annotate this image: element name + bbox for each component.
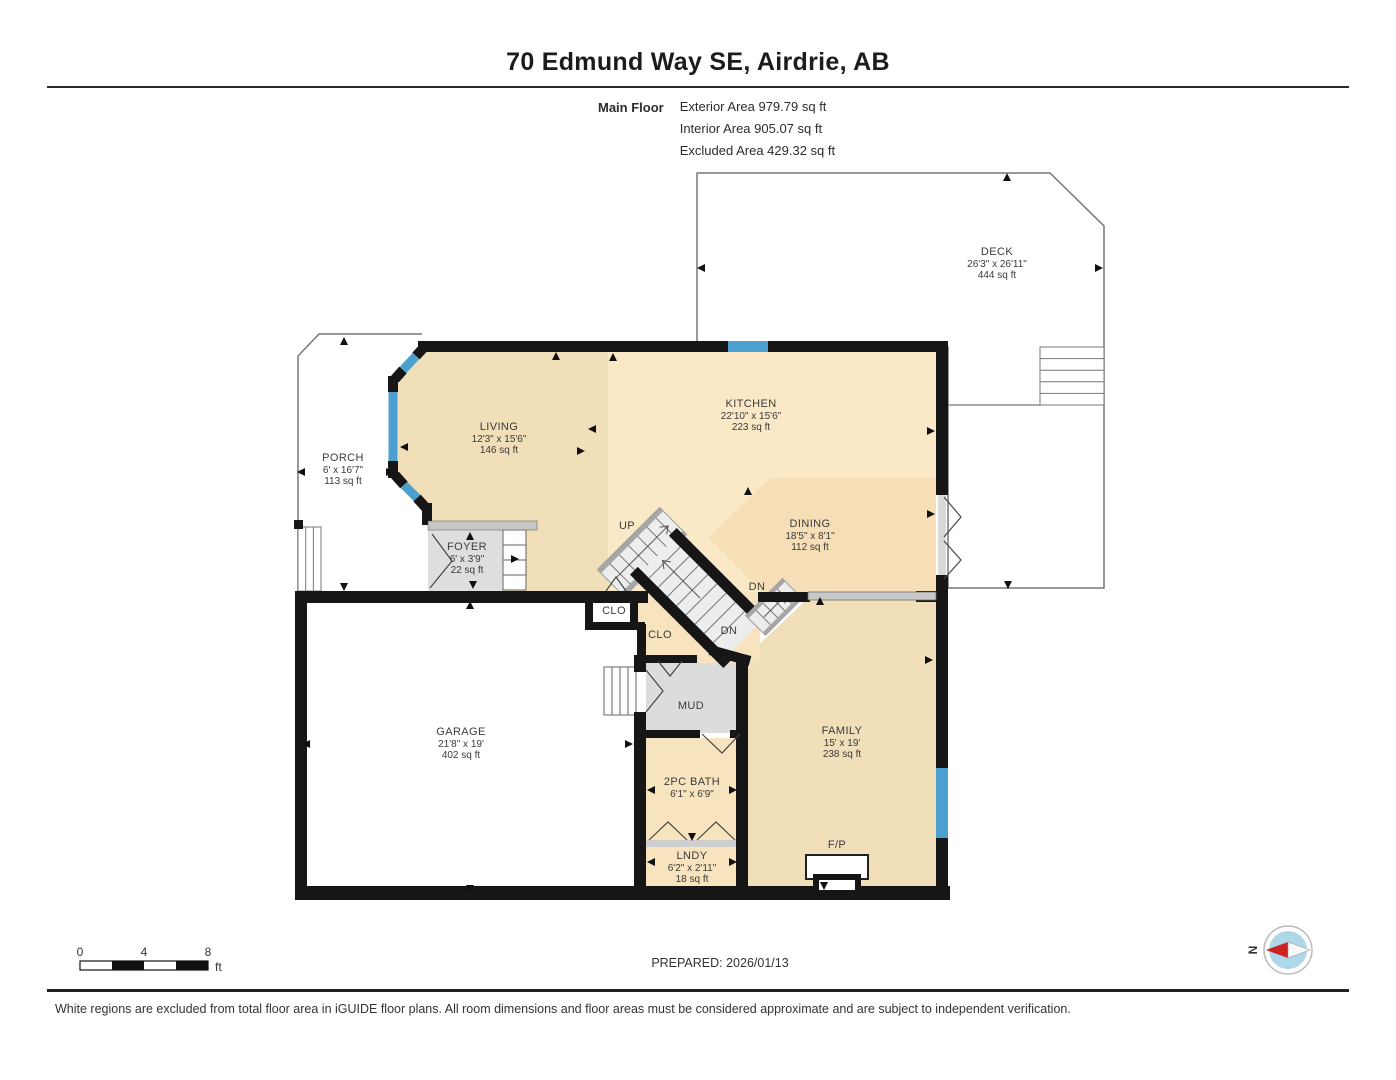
scale-eight: 8 [205,945,212,959]
scale-four: 4 [141,945,148,959]
prepared-date: PREPARED: 2026/01/13 [600,956,840,970]
stairs-garage-entry [604,667,636,715]
scale-zero: 0 [77,945,84,959]
fireplace [806,855,868,893]
floorplan-page: 70 Edmund Way SE, Airdrie, AB Main Floor… [0,0,1396,1080]
floor-fills [307,352,936,886]
scale-unit: ft [215,960,222,974]
floorplan-drawing: 0 4 8 ft N [0,0,1396,1080]
north-label: N [1246,946,1260,955]
disclaimer-text: White regions are excluded from total fl… [55,1002,1071,1016]
north-compass-icon: N [1246,926,1312,974]
footer-divider [47,989,1349,992]
scale-bar: 0 4 8 ft [77,945,223,974]
